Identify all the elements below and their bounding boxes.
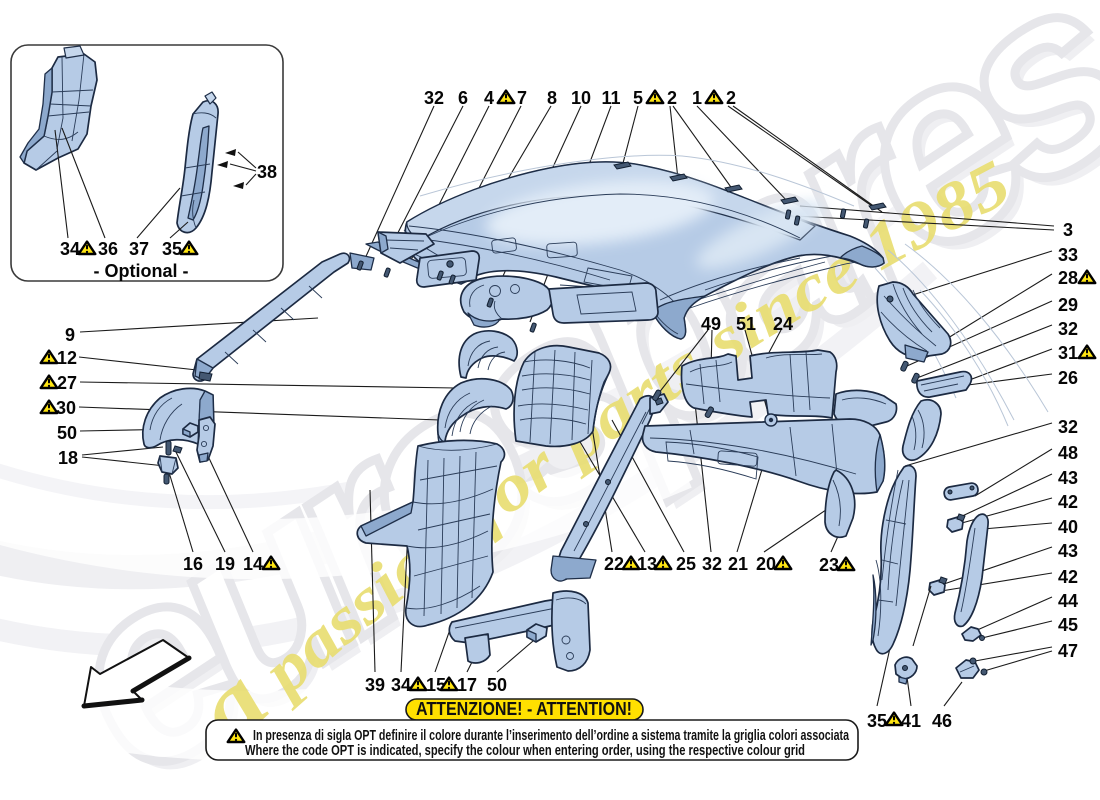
svg-text:46: 46 xyxy=(932,711,952,731)
svg-text:34: 34 xyxy=(60,239,80,259)
svg-text:23: 23 xyxy=(819,555,839,575)
svg-text:8: 8 xyxy=(547,88,557,108)
svg-text:50: 50 xyxy=(487,675,507,695)
svg-text:40: 40 xyxy=(1058,517,1078,537)
svg-text:2: 2 xyxy=(726,88,736,108)
svg-text:32: 32 xyxy=(1058,417,1078,437)
svg-text:32: 32 xyxy=(1058,319,1078,339)
svg-text:42: 42 xyxy=(1058,567,1078,587)
svg-text:21: 21 xyxy=(728,554,748,574)
svg-text:39: 39 xyxy=(365,675,385,695)
svg-text:12: 12 xyxy=(57,348,77,368)
svg-text:22: 22 xyxy=(604,554,624,574)
svg-text:41: 41 xyxy=(901,711,921,731)
svg-text:14: 14 xyxy=(243,554,263,574)
svg-text:11: 11 xyxy=(601,88,620,108)
svg-text:47: 47 xyxy=(1058,641,1078,661)
svg-text:32: 32 xyxy=(702,554,722,574)
svg-text:30: 30 xyxy=(56,398,76,418)
svg-text:6: 6 xyxy=(458,88,468,108)
svg-text:48: 48 xyxy=(1058,443,1078,463)
svg-text:43: 43 xyxy=(1058,541,1078,561)
svg-text:ATTENZIONE! - ATTENTION!: ATTENZIONE! - ATTENTION! xyxy=(416,699,632,719)
svg-text:3: 3 xyxy=(1063,220,1073,240)
svg-text:- Optional -: - Optional - xyxy=(94,261,189,281)
svg-text:26: 26 xyxy=(1058,368,1078,388)
svg-text:50: 50 xyxy=(57,423,77,443)
svg-text:24: 24 xyxy=(773,314,793,334)
svg-text:34: 34 xyxy=(391,675,411,695)
svg-text:32: 32 xyxy=(424,88,444,108)
svg-text:2: 2 xyxy=(667,88,677,108)
svg-text:45: 45 xyxy=(1058,615,1078,635)
svg-text:9: 9 xyxy=(65,325,75,345)
svg-text:10: 10 xyxy=(571,88,591,108)
svg-text:44: 44 xyxy=(1058,591,1078,611)
svg-text:37: 37 xyxy=(129,239,149,259)
svg-text:20: 20 xyxy=(756,554,776,574)
svg-text:36: 36 xyxy=(98,239,118,259)
svg-text:25: 25 xyxy=(676,554,696,574)
svg-text:27: 27 xyxy=(57,373,77,393)
svg-text:38: 38 xyxy=(257,162,277,182)
svg-text:13: 13 xyxy=(637,554,657,574)
svg-text:35: 35 xyxy=(162,239,182,259)
svg-text:28: 28 xyxy=(1058,268,1078,288)
svg-text:16: 16 xyxy=(183,554,203,574)
svg-text:5: 5 xyxy=(633,88,643,108)
svg-text:In presenza di sigla OPT defin: In presenza di sigla OPT definire il col… xyxy=(253,728,850,744)
svg-text:1: 1 xyxy=(692,88,702,108)
svg-text:17: 17 xyxy=(457,675,477,695)
svg-text:33: 33 xyxy=(1058,245,1078,265)
svg-text:7: 7 xyxy=(517,88,527,108)
svg-text:43: 43 xyxy=(1058,468,1078,488)
svg-text:35: 35 xyxy=(867,711,887,731)
svg-text:49: 49 xyxy=(701,314,721,334)
svg-text:42: 42 xyxy=(1058,492,1078,512)
svg-text:18: 18 xyxy=(58,448,78,468)
svg-text:51: 51 xyxy=(736,314,756,334)
svg-text:19: 19 xyxy=(215,554,235,574)
svg-text:29: 29 xyxy=(1058,295,1078,315)
svg-text:31: 31 xyxy=(1058,343,1078,363)
svg-text:Where the code OPT is indicate: Where the code OPT is indicated, specify… xyxy=(245,743,805,759)
svg-text:4: 4 xyxy=(484,88,494,108)
